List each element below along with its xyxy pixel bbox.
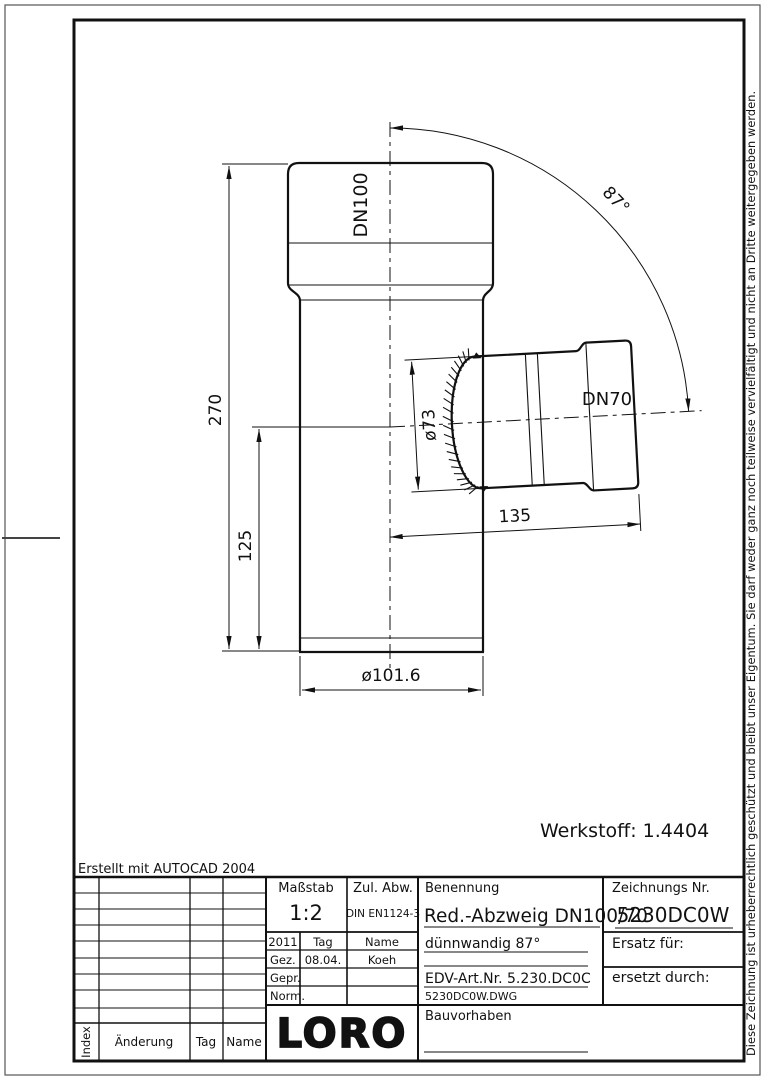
werkstoff-note: Werkstoff: 1.4404 — [540, 820, 709, 842]
dim-branch-length: 135 — [388, 494, 641, 544]
zul-abw-label: Zul. Abw. — [353, 881, 413, 896]
main-body-outline — [299, 301, 484, 652]
revision-table — [74, 893, 266, 1008]
name-header: Name — [226, 1035, 261, 1049]
norm-label: Norm. — [270, 989, 305, 1003]
dim-arc-87 — [390, 128, 689, 411]
drawing-sheet: ø73 135 270 125 ø101.6 87° DN100 DN70 We… — [0, 0, 765, 1080]
dim-text-angle: 87° — [598, 183, 633, 219]
massstab-value: 1:2 — [289, 901, 323, 925]
benennung-label: Benennung — [425, 881, 499, 896]
cad-canvas: ø73 135 270 125 ø101.6 87° DN100 DN70 We… — [0, 0, 765, 1080]
dim-text-branch-height: 125 — [236, 530, 256, 562]
dim-text-branch-dia: ø73 — [419, 408, 441, 441]
tag-header: Tag — [195, 1035, 216, 1049]
dwg-file: 5230DC0W.DWG — [425, 990, 517, 1003]
weld-saddle-curve — [448, 356, 481, 489]
massstab-label: Maßstab — [278, 881, 333, 896]
rev-year: 2011 — [268, 935, 297, 949]
benennung-value: Red.-Abzweig DN100/70 — [424, 906, 648, 927]
title-block-texts: Maßstab 1:2 Zul. Abw. DIN EN1124-3 Benen… — [79, 881, 730, 1058]
erstellt-note: Erstellt mit AUTOCAD 2004 — [78, 862, 255, 877]
main-pipe — [288, 122, 493, 668]
gepr-label: Gepr. — [270, 971, 301, 985]
rev-tag-col: Tag — [312, 935, 332, 949]
dim-branch-weld-dia: ø73 — [405, 356, 486, 492]
dim-text-main-dia: ø101.6 — [361, 666, 420, 686]
aenderung-header: Änderung — [115, 1034, 174, 1049]
dim-text-total-height: 270 — [206, 394, 226, 426]
dim-ext-line — [639, 494, 641, 531]
ersetzt-label: ersetzt durch: — [612, 970, 710, 986]
dim-text-branch-length: 135 — [498, 506, 531, 528]
dimensions: 270 125 ø101.6 87° — [206, 128, 689, 696]
loro-logo: LORO — [277, 1011, 408, 1057]
gez-name: Koeh — [368, 953, 396, 967]
edv-artnr: EDV-Art.Nr. 5.230.DC0C — [425, 971, 591, 987]
gez-label: Gez. — [270, 953, 296, 967]
main-socket-shoulder-left — [288, 283, 300, 301]
label-dn100: DN100 — [350, 172, 372, 237]
subtitle: dünnwandig 87° — [425, 936, 540, 952]
main-socket-shoulder-right — [483, 283, 493, 301]
bauvorhaben-label: Bauvorhaben — [425, 1009, 512, 1024]
gez-date: 08.04. — [305, 953, 342, 967]
rev-name-col: Name — [365, 935, 399, 949]
ersatz-label: Ersatz für: — [612, 936, 684, 952]
label-dn70: DN70 — [582, 389, 632, 410]
zeichnungs-value: 5230DC0W — [617, 903, 730, 927]
zeichnungs-label: Zeichnungs Nr. — [612, 881, 710, 896]
copyright-disclaimer: Diese Zeichnung ist urheberrechtlich ges… — [745, 91, 758, 1056]
branch-pipe: ø73 135 — [380, 336, 708, 544]
zul-abw-value: DIN EN1124-3 — [346, 908, 420, 920]
index-header: Index — [79, 1026, 93, 1058]
